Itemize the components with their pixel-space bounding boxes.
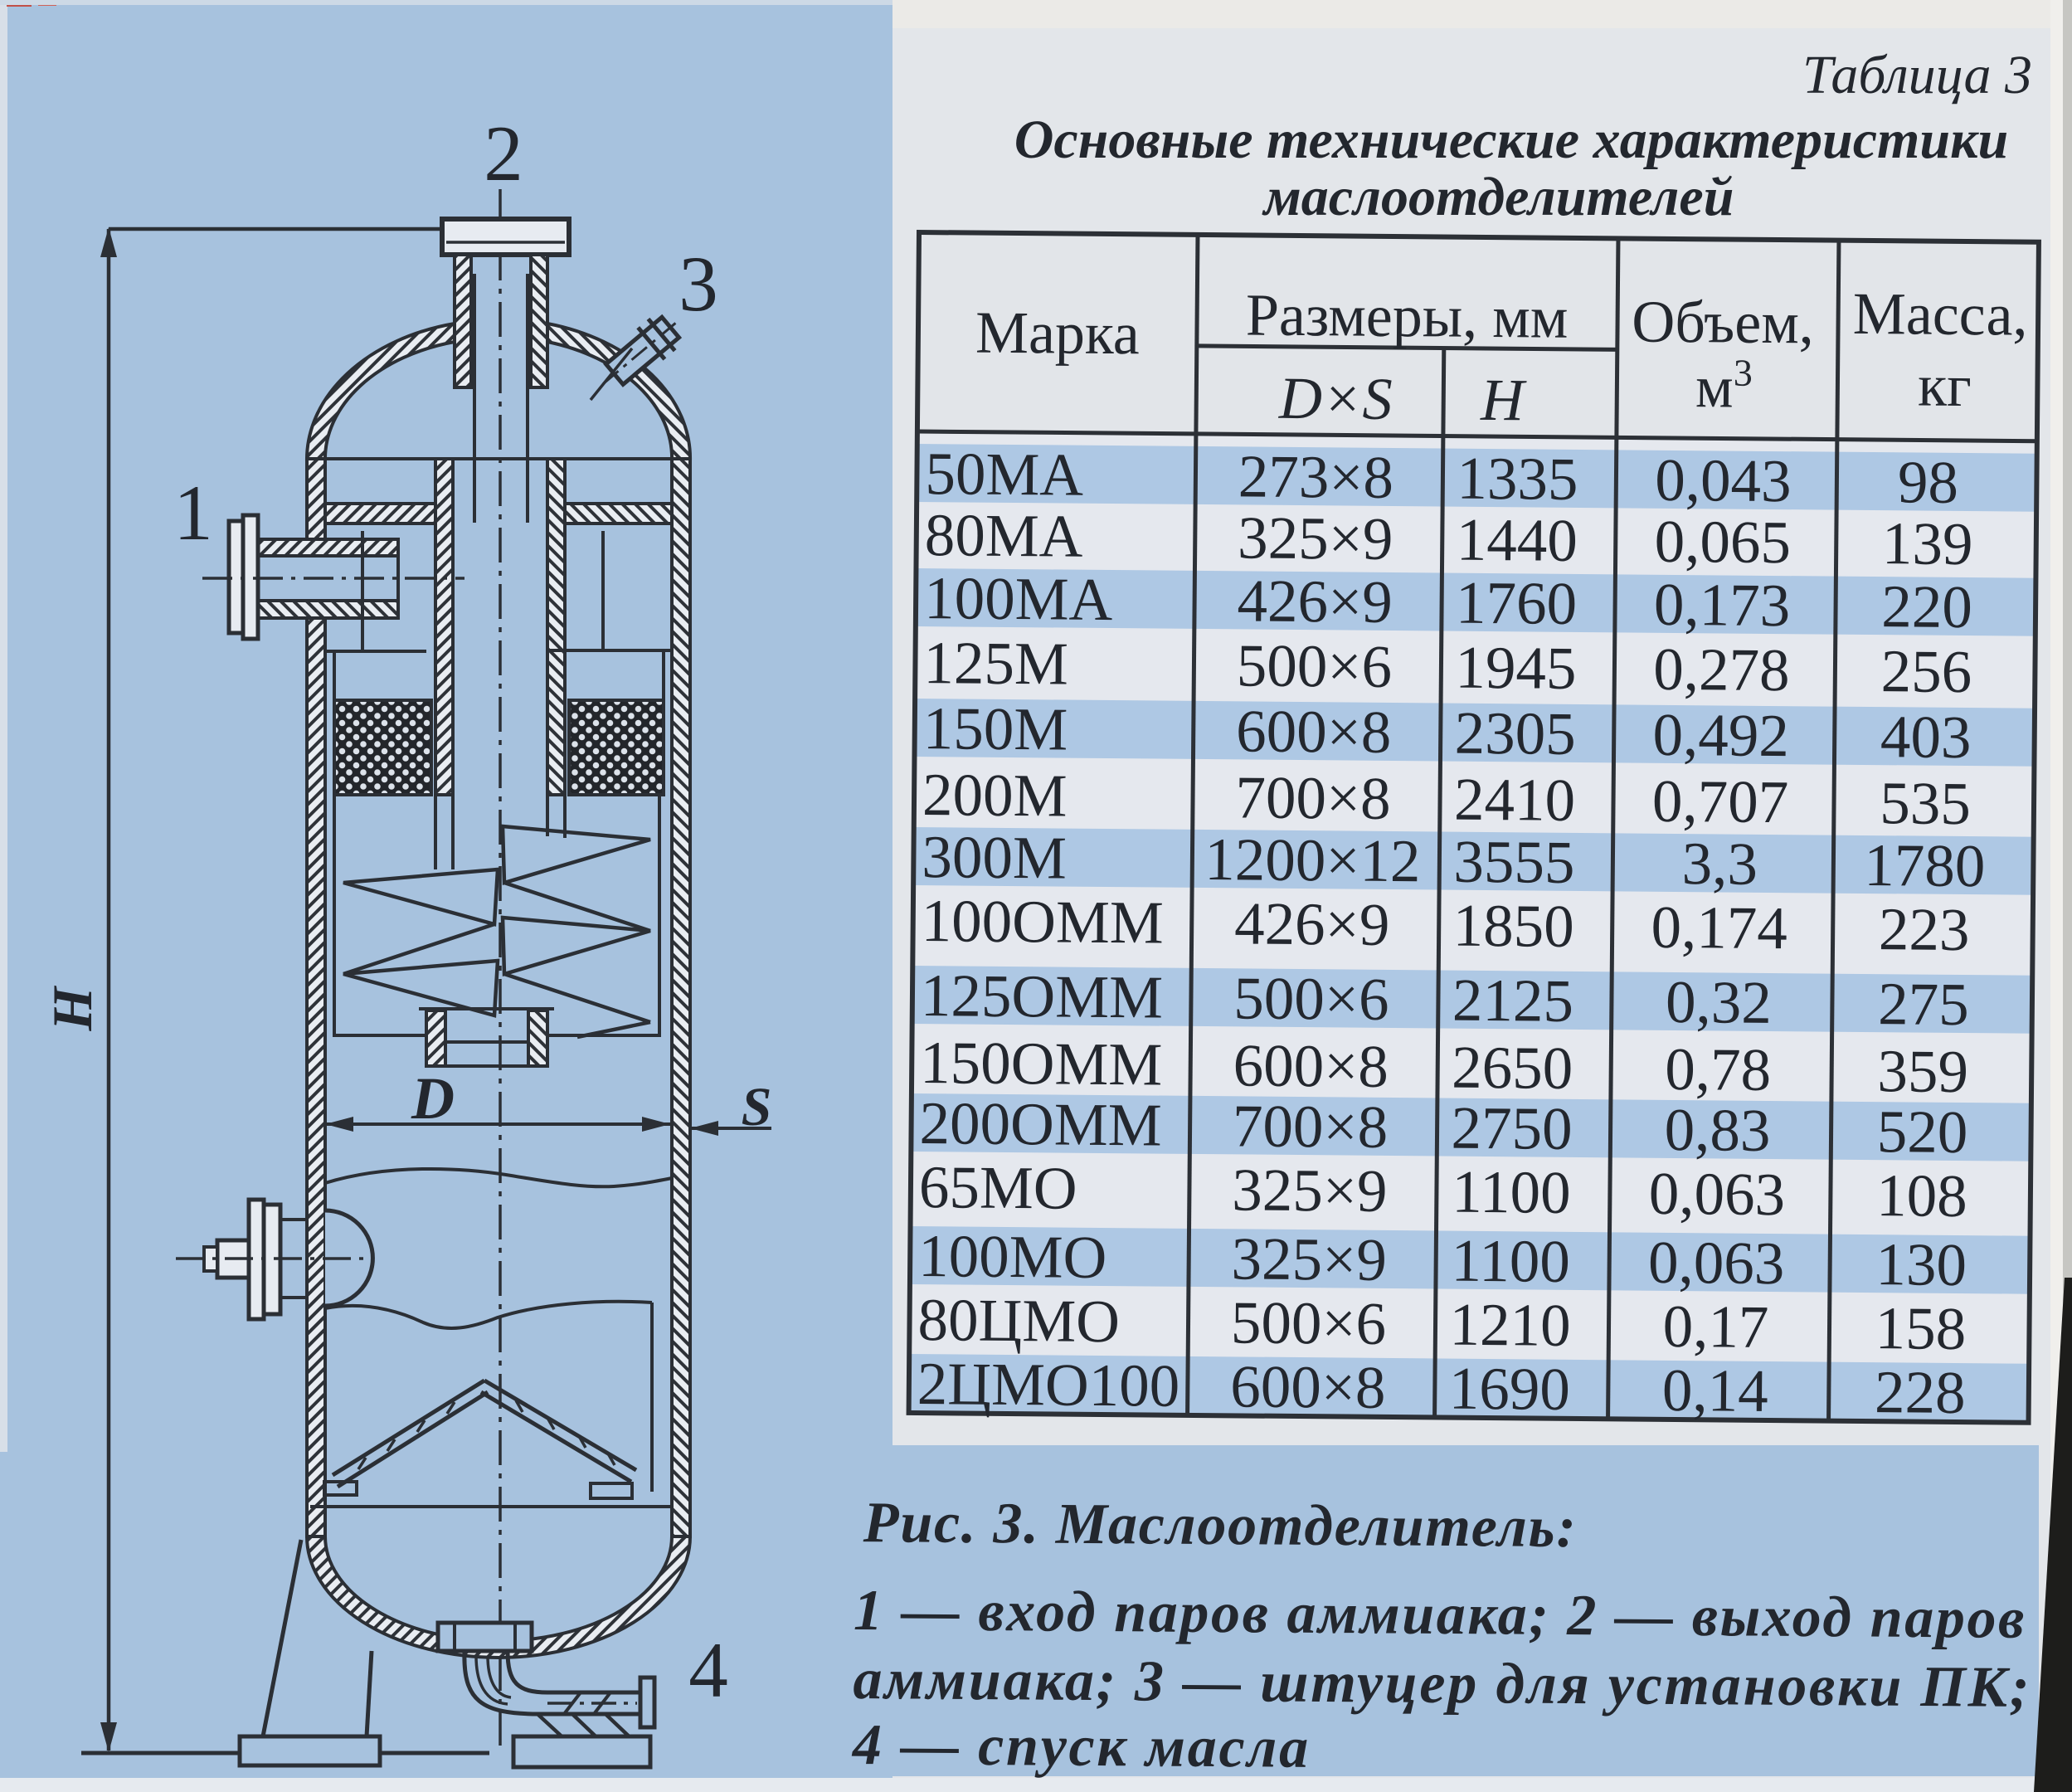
svg-text:0,065: 0,065 bbox=[1654, 508, 1791, 576]
svg-text:158: 158 bbox=[1875, 1294, 1966, 1362]
svg-text:0,063: 0,063 bbox=[1648, 1160, 1785, 1228]
svg-text:325×9: 325×9 bbox=[1238, 504, 1393, 572]
svg-text:Рис. 3. Маслоотделитель:: Рис. 3. Маслоотделитель: bbox=[863, 1491, 1578, 1560]
svg-text:4: 4 bbox=[688, 1626, 728, 1714]
svg-text:0,492: 0,492 bbox=[1652, 701, 1789, 769]
svg-text:1 — вход паров аммиака; 2 — вы: 1 — вход паров аммиака; 2 — выход паров bbox=[854, 1579, 2026, 1651]
svg-text:аммиака; 3 — штуцер для устано: аммиака; 3 — штуцер для установки ПК; bbox=[853, 1648, 2031, 1720]
svg-text:65МО: 65МО bbox=[919, 1153, 1077, 1222]
svg-text:100МО: 100МО bbox=[918, 1222, 1107, 1291]
svg-text:150ОММ: 150ОММ bbox=[920, 1029, 1163, 1098]
svg-text:1760: 1760 bbox=[1456, 569, 1578, 637]
svg-text:228: 228 bbox=[1875, 1358, 1966, 1426]
svg-text:50МА: 50МА bbox=[925, 440, 1084, 509]
svg-text:108: 108 bbox=[1876, 1161, 1967, 1230]
svg-text:600×8: 600×8 bbox=[1230, 1352, 1386, 1421]
svg-text:0,063: 0,063 bbox=[1648, 1229, 1785, 1297]
svg-text:426×9: 426×9 bbox=[1237, 567, 1393, 635]
svg-text:130: 130 bbox=[1875, 1230, 1967, 1298]
svg-text:D: D bbox=[411, 1065, 455, 1132]
svg-text:325×9: 325×9 bbox=[1232, 1156, 1388, 1225]
svg-text:1100: 1100 bbox=[1451, 1227, 1570, 1295]
svg-text:150М: 150М bbox=[922, 694, 1068, 763]
svg-text:1690: 1690 bbox=[1449, 1355, 1571, 1423]
svg-text:403: 403 bbox=[1880, 703, 1972, 771]
svg-text:3,3: 3,3 bbox=[1681, 830, 1758, 898]
svg-text:125ОММ: 125ОММ bbox=[921, 962, 1164, 1031]
svg-text:0,278: 0,278 bbox=[1653, 635, 1790, 704]
svg-text:1850: 1850 bbox=[1452, 892, 1574, 960]
svg-text:D×S: D×S bbox=[1278, 365, 1393, 432]
svg-text:2305: 2305 bbox=[1454, 699, 1576, 767]
svg-text:600×8: 600×8 bbox=[1236, 697, 1392, 766]
svg-text:273×8: 273×8 bbox=[1238, 442, 1394, 511]
svg-text:700×8: 700×8 bbox=[1233, 1092, 1389, 1161]
svg-text:1945: 1945 bbox=[1455, 634, 1577, 702]
svg-text:Таблица 3: Таблица 3 bbox=[1802, 45, 2032, 105]
svg-text:H: H bbox=[41, 985, 104, 1031]
svg-text:600×8: 600×8 bbox=[1233, 1031, 1389, 1100]
svg-text:0,83: 0,83 bbox=[1664, 1096, 1770, 1164]
svg-text:маслоотделителей: маслоотделителей bbox=[1262, 167, 1734, 227]
svg-text:80МА: 80МА bbox=[924, 501, 1083, 570]
svg-text:100МА: 100МА bbox=[924, 564, 1113, 633]
svg-text:220: 220 bbox=[1881, 572, 1972, 640]
svg-text:359: 359 bbox=[1877, 1037, 1968, 1105]
svg-text:0,14: 0,14 bbox=[1662, 1356, 1768, 1424]
svg-text:кг: кг bbox=[1918, 353, 1972, 420]
svg-text:Масса,: Масса, bbox=[1852, 280, 2027, 348]
svg-text:3555: 3555 bbox=[1453, 828, 1575, 896]
svg-text:100ОММ: 100ОММ bbox=[921, 887, 1164, 957]
svg-text:1100: 1100 bbox=[1452, 1158, 1571, 1226]
svg-text:200М: 200М bbox=[922, 761, 1068, 830]
svg-text:3: 3 bbox=[679, 240, 718, 328]
svg-text:1200×12: 1200×12 bbox=[1204, 825, 1421, 894]
svg-text:0,78: 0,78 bbox=[1665, 1035, 1771, 1103]
svg-text:426×9: 426×9 bbox=[1234, 889, 1390, 958]
svg-text:0,707: 0,707 bbox=[1652, 767, 1789, 835]
svg-text:1335: 1335 bbox=[1457, 445, 1578, 513]
svg-text:2750: 2750 bbox=[1451, 1094, 1573, 1162]
svg-text:2650: 2650 bbox=[1452, 1034, 1573, 1102]
svg-text:Марка: Марка bbox=[975, 299, 1141, 368]
svg-text:500×6: 500×6 bbox=[1231, 1288, 1387, 1357]
svg-text:2125: 2125 bbox=[1452, 967, 1574, 1035]
svg-text:325×9: 325×9 bbox=[1231, 1225, 1387, 1293]
svg-text:98: 98 bbox=[1898, 448, 1959, 516]
svg-text:0,173: 0,173 bbox=[1654, 571, 1791, 639]
svg-text:275: 275 bbox=[1878, 970, 1969, 1038]
svg-text:700×8: 700×8 bbox=[1235, 763, 1391, 832]
svg-text:Основные технические характери: Основные технические характеристики bbox=[1014, 110, 2009, 170]
svg-text:520: 520 bbox=[1876, 1098, 1967, 1166]
svg-text:500×6: 500×6 bbox=[1233, 964, 1389, 1033]
svg-text:223: 223 bbox=[1879, 895, 1970, 963]
svg-text:2410: 2410 bbox=[1454, 766, 1576, 834]
svg-text:80ЦМО: 80ЦМО bbox=[917, 1286, 1120, 1355]
svg-text:H: H bbox=[1480, 367, 1528, 433]
svg-text:1: 1 bbox=[173, 469, 213, 557]
svg-text:1780: 1780 bbox=[1864, 831, 1986, 899]
svg-text:125М: 125М bbox=[923, 629, 1068, 698]
svg-text:300М: 300М bbox=[922, 823, 1067, 892]
svg-text:0,17: 0,17 bbox=[1662, 1293, 1768, 1361]
svg-text:4 — спуск масла: 4 — спуск масла bbox=[851, 1713, 1311, 1780]
svg-text:1440: 1440 bbox=[1456, 506, 1578, 574]
svg-text:139: 139 bbox=[1882, 509, 1973, 577]
svg-text:2ЦМО100: 2ЦМО100 bbox=[917, 1350, 1180, 1419]
svg-text:0,043: 0,043 bbox=[1655, 446, 1792, 514]
svg-text:200ОММ: 200ОММ bbox=[919, 1089, 1162, 1159]
svg-text:Объем,: Объем, bbox=[1632, 289, 1814, 357]
svg-text:2: 2 bbox=[484, 110, 523, 197]
svg-text:Размеры, мм: Размеры, мм bbox=[1246, 281, 1569, 350]
svg-text:256: 256 bbox=[1880, 637, 1972, 705]
svg-text:1210: 1210 bbox=[1449, 1291, 1571, 1359]
svg-text:0,174: 0,174 bbox=[1651, 894, 1787, 962]
svg-text:535: 535 bbox=[1880, 769, 1971, 837]
svg-text:S: S bbox=[742, 1077, 772, 1137]
svg-text:500×6: 500×6 bbox=[1237, 631, 1393, 700]
svg-text:0,32: 0,32 bbox=[1666, 968, 1772, 1036]
